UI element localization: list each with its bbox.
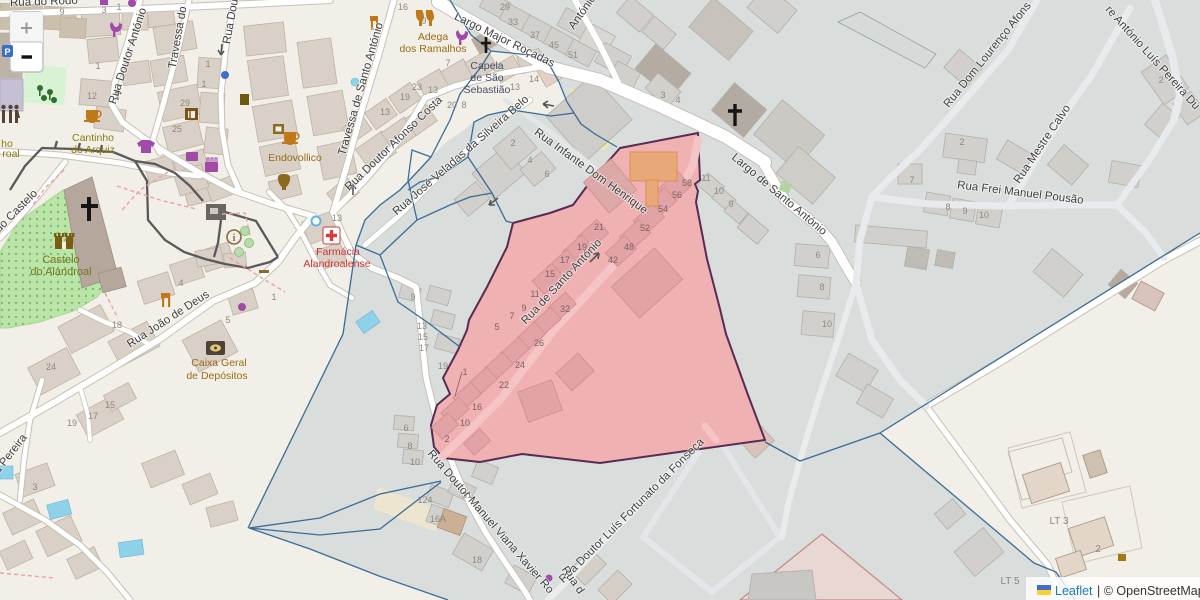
svg-text:25: 25 [172,124,182,134]
svg-text:13: 13 [417,321,427,331]
svg-text:2: 2 [444,434,449,444]
svg-text:1: 1 [271,292,276,302]
svg-text:13: 13 [510,82,520,92]
svg-text:16: 16 [398,2,408,12]
svg-text:58: 58 [682,178,692,188]
svg-text:45: 45 [549,40,559,50]
svg-text:2: 2 [959,137,964,147]
svg-text:1: 1 [205,59,210,69]
svg-text:48: 48 [624,242,634,252]
svg-text:Castelo: Castelo [42,254,79,266]
svg-text:roal: roal [2,148,20,160]
svg-text:Cantinho: Cantinho [72,132,114,144]
svg-text:52: 52 [640,223,650,233]
svg-text:12: 12 [87,91,97,101]
svg-text:18: 18 [472,555,482,565]
svg-text:37: 37 [530,30,540,40]
svg-text:Adega: Adega [418,31,449,43]
svg-text:10: 10 [979,210,989,220]
svg-text:13: 13 [332,213,342,223]
svg-text:124: 124 [417,495,432,505]
svg-text:1: 1 [201,79,206,89]
svg-text:Caixa Geral: Caixa Geral [191,357,246,369]
svg-text:51: 51 [568,50,578,60]
svg-text:19: 19 [400,92,410,102]
svg-text:11: 11 [530,289,539,299]
svg-text:9: 9 [521,303,526,313]
svg-text:LT 3: LT 3 [1049,516,1069,527]
svg-text:29: 29 [180,98,190,108]
svg-text:9: 9 [421,16,426,26]
svg-text:de São: de São [470,72,503,84]
svg-text:8: 8 [407,441,412,451]
svg-text:6: 6 [815,250,820,260]
svg-text:dos Ramalhos: dos Ramalhos [399,43,466,55]
svg-text:16A: 16A [430,514,446,524]
svg-text:do Alandroal: do Alandroal [30,266,91,278]
svg-text:5: 5 [225,315,230,325]
svg-text:23: 23 [412,82,422,92]
svg-text:13: 13 [380,107,390,117]
svg-text:56: 56 [672,190,682,200]
svg-text:6: 6 [403,423,408,433]
svg-text:32: 32 [560,304,570,314]
svg-text:19: 19 [577,242,587,252]
svg-text:24: 24 [515,360,525,370]
svg-text:10: 10 [714,186,724,196]
svg-text:7: 7 [445,58,450,68]
svg-text:20: 20 [447,100,457,110]
svg-text:3: 3 [101,5,106,15]
svg-text:33: 33 [508,17,518,27]
svg-text:10: 10 [410,457,420,467]
svg-text:8: 8 [461,100,466,110]
svg-text:de Depósitos: de Depósitos [186,370,247,382]
svg-text:i: i [233,233,236,244]
svg-text:9: 9 [410,292,415,302]
svg-text:19: 19 [438,361,448,371]
svg-text:Leaflet: Leaflet [1055,584,1093,598]
svg-text:42: 42 [608,255,618,265]
svg-text:6: 6 [544,169,549,179]
svg-text:18: 18 [112,320,122,330]
svg-text:Farmácia: Farmácia [316,246,360,258]
svg-text:29: 29 [500,2,510,12]
svg-text:2: 2 [1158,75,1163,85]
svg-text:13: 13 [428,85,438,95]
svg-text:Alandroalense: Alandroalense [303,258,370,270]
svg-text:8: 8 [945,202,950,212]
svg-text:17: 17 [88,411,98,421]
svg-text:1: 1 [462,367,467,377]
svg-text:9: 9 [962,206,967,216]
svg-text:54: 54 [658,204,668,214]
svg-text:Endovollico: Endovollico [268,152,322,164]
svg-text:1: 1 [95,61,100,71]
svg-text:Capela: Capela [470,60,503,72]
svg-text:22: 22 [499,380,509,390]
svg-text:10: 10 [822,319,832,329]
svg-text:17: 17 [419,343,429,353]
svg-text:3: 3 [32,482,37,492]
svg-text:Sebastião: Sebastião [464,84,511,96]
svg-text:5: 5 [494,322,499,332]
svg-text:| © OpenStreetMap: | © OpenStreetMap [1097,584,1200,598]
svg-text:17: 17 [560,255,570,265]
svg-text:11: 11 [701,173,710,183]
svg-text:P: P [4,47,10,57]
svg-text:7: 7 [909,175,914,185]
svg-text:2: 2 [510,138,515,148]
svg-text:4: 4 [675,95,680,105]
svg-text:15: 15 [418,332,428,342]
svg-text:26: 26 [534,338,544,348]
svg-text:21: 21 [594,222,604,232]
svg-text:16: 16 [472,402,482,412]
svg-text:19: 19 [67,418,77,428]
svg-text:LT 5: LT 5 [1000,576,1020,587]
svg-text:10: 10 [460,418,470,428]
svg-text:14: 14 [529,74,539,84]
svg-text:3: 3 [660,90,665,100]
svg-text:7: 7 [509,311,514,321]
svg-text:4: 4 [527,155,532,165]
svg-text:31: 31 [462,490,472,500]
svg-text:4: 4 [178,278,183,288]
svg-text:15: 15 [105,400,115,410]
svg-text:8: 8 [819,282,824,292]
svg-text:do Arquiz: do Arquiz [71,144,115,156]
svg-text:9: 9 [728,199,733,209]
svg-text:1: 1 [116,2,121,12]
svg-text:24: 24 [46,362,56,372]
svg-text:15: 15 [545,269,555,279]
svg-text:9: 9 [59,7,64,17]
svg-text:2: 2 [1095,544,1101,555]
